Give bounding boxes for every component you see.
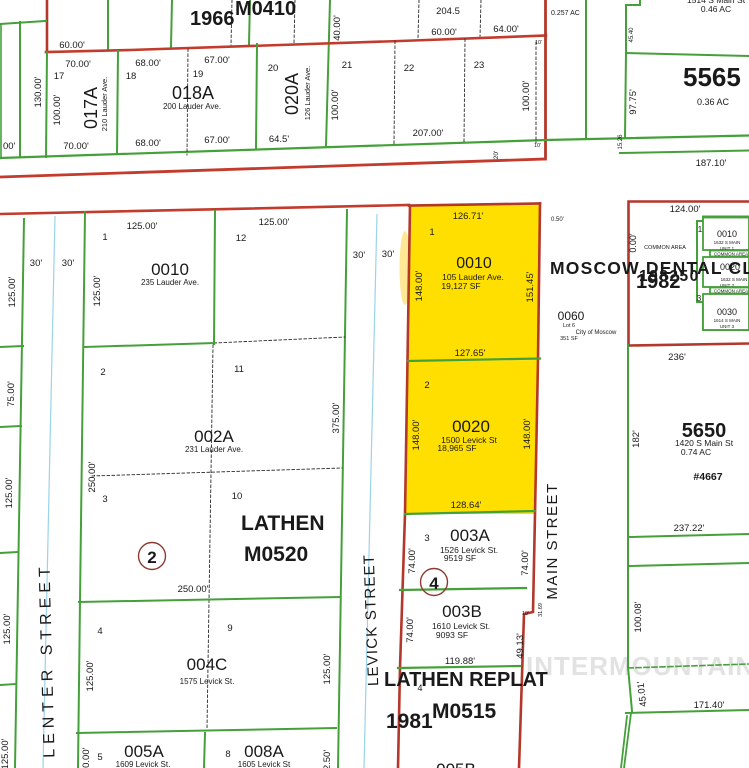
svg-text:1: 1 [698, 225, 703, 234]
svg-text:4: 4 [429, 574, 439, 593]
svg-text:COMMON AREA: COMMON AREA [644, 245, 686, 251]
svg-text:004C: 004C [187, 655, 228, 674]
svg-text:231 Lauder Ave.: 231 Lauder Ave. [185, 445, 243, 454]
svg-text:1609 Levick St.: 1609 Levick St. [116, 760, 171, 768]
svg-text:15.26: 15.26 [618, 134, 624, 150]
svg-text:003A: 003A [450, 526, 490, 545]
svg-text:74.00': 74.00' [405, 617, 416, 643]
svg-text:250.00': 250.00' [87, 461, 98, 492]
svg-text:1605 Levick St: 1605 Levick St [238, 760, 291, 768]
svg-text:100.08': 100.08' [633, 601, 644, 632]
svg-text:0060: 0060 [558, 309, 585, 323]
svg-text:COMMON AREA: COMMON AREA [714, 252, 748, 257]
svg-text:005A: 005A [124, 742, 164, 761]
svg-text:2: 2 [147, 548, 156, 567]
svg-text:75.00': 75.00' [6, 381, 17, 407]
svg-text:148.00': 148.00' [522, 418, 533, 449]
svg-text:0030: 0030 [717, 307, 737, 317]
svg-text:30': 30' [382, 249, 395, 260]
svg-text:Lot 6: Lot 6 [563, 323, 575, 329]
svg-text:3: 3 [102, 494, 107, 505]
svg-text:23: 23 [474, 60, 485, 71]
svg-text:1575 Levick St.: 1575 Levick St. [180, 677, 235, 686]
svg-text:003B: 003B [442, 602, 482, 621]
svg-text:20: 20 [268, 63, 279, 74]
svg-text:1966: 1966 [190, 8, 235, 30]
svg-text:M0515: M0515 [432, 700, 497, 723]
svg-text:49.13': 49.13' [515, 633, 526, 659]
svg-text:204.5: 204.5 [436, 6, 460, 17]
svg-text:125.00': 125.00' [322, 653, 333, 684]
svg-text:M0520: M0520 [244, 543, 308, 566]
svg-text:200 Lauder Ave.: 200 Lauder Ave. [163, 102, 221, 111]
svg-text:005B: 005B [436, 760, 476, 768]
svg-text:4: 4 [97, 626, 102, 637]
svg-text:0010: 0010 [717, 229, 737, 239]
svg-text:19,127 SF: 19,127 SF [441, 281, 480, 291]
svg-text:148.00': 148.00' [411, 419, 422, 450]
svg-text:UNIT 3: UNIT 3 [720, 324, 735, 329]
svg-text:2: 2 [100, 367, 105, 378]
svg-text:68.00': 68.00' [135, 58, 161, 69]
svg-text:0010: 0010 [456, 255, 492, 272]
svg-text:City of Moscow: City of Moscow [576, 330, 617, 336]
svg-text:126.71': 126.71' [453, 211, 484, 222]
svg-text:151.45': 151.45' [525, 271, 536, 302]
svg-text:100.00': 100.00' [330, 89, 341, 120]
svg-text:1: 1 [102, 232, 107, 243]
svg-text:125.00': 125.00' [259, 217, 290, 228]
svg-text:0020: 0020 [452, 417, 490, 436]
svg-text:125.00': 125.00' [2, 613, 13, 644]
svg-text:125.00': 125.00' [92, 275, 103, 306]
svg-text:21: 21 [342, 60, 353, 71]
svg-text:30': 30' [353, 250, 366, 261]
svg-text:002A: 002A [194, 427, 234, 446]
svg-text:125.00': 125.00' [4, 477, 15, 508]
svg-text:187.10': 187.10' [696, 158, 727, 169]
svg-text:9093 SF: 9093 SF [436, 630, 468, 640]
svg-text:31.69: 31.69 [538, 603, 544, 617]
svg-text:182': 182' [631, 430, 642, 448]
svg-text:10': 10' [535, 40, 542, 46]
svg-text:250.00': 250.00' [178, 584, 209, 595]
svg-text:1981: 1981 [386, 710, 433, 733]
svg-text:40.00': 40.00' [332, 15, 343, 41]
svg-text:236': 236' [668, 352, 686, 363]
svg-text:0.257 AC: 0.257 AC [551, 10, 580, 17]
svg-text:INTERMOUNTAIN: INTERMOUNTAIN [526, 651, 749, 681]
svg-text:67.00': 67.00' [204, 55, 230, 66]
svg-text:008A: 008A [244, 742, 284, 761]
svg-text:COMMON AREA: COMMON AREA [714, 289, 748, 294]
svg-text:8: 8 [225, 749, 230, 760]
svg-text:126 Lauder Ave.: 126 Lauder Ave. [303, 66, 312, 121]
svg-text:17: 17 [54, 71, 65, 82]
svg-text:64.00': 64.00' [493, 24, 519, 35]
svg-text:64.5': 64.5' [269, 134, 289, 145]
svg-text:00': 00' [3, 141, 16, 152]
svg-text:LATHEN REPLAT: LATHEN REPLAT [384, 669, 548, 691]
svg-text:70.00': 70.00' [65, 59, 91, 70]
svg-text:30': 30' [30, 258, 43, 269]
svg-text:127.65': 127.65' [455, 348, 486, 359]
svg-text:250.00': 250.00' [81, 747, 92, 768]
svg-text:125.00': 125.00' [127, 221, 158, 232]
svg-text:20': 20' [493, 151, 500, 159]
svg-text:18,965 SF: 18,965 SF [437, 443, 476, 453]
svg-text:100.00': 100.00' [52, 94, 63, 125]
svg-text:125.00': 125.00' [0, 738, 11, 768]
svg-text:68.00': 68.00' [135, 138, 161, 149]
svg-text:375.00': 375.00' [331, 402, 342, 433]
svg-text:9: 9 [227, 623, 232, 634]
svg-text:0.00': 0.00' [628, 233, 638, 253]
svg-text:MAIN STREET: MAIN STREET [544, 482, 561, 599]
svg-text:020A: 020A [282, 73, 302, 115]
svg-text:237.22': 237.22' [674, 523, 705, 534]
svg-text:2: 2 [424, 380, 429, 391]
svg-text:0.74 AC: 0.74 AC [681, 447, 711, 457]
svg-text:10': 10' [522, 611, 529, 617]
svg-text:60.00': 60.00' [59, 40, 85, 51]
svg-text:171.40': 171.40' [694, 700, 725, 711]
svg-text:70.00': 70.00' [63, 141, 89, 152]
svg-text:22: 22 [404, 63, 415, 74]
svg-text:5565: 5565 [683, 62, 741, 92]
svg-text:148.00': 148.00' [414, 270, 425, 301]
svg-text:0.36 AC: 0.36 AC [697, 97, 730, 107]
svg-text:119.88': 119.88' [445, 656, 475, 667]
svg-text:124.00': 124.00' [670, 204, 701, 215]
svg-text:130.00': 130.00' [33, 76, 44, 107]
svg-text:#4667: #4667 [693, 471, 722, 483]
svg-text:M0410: M0410 [235, 0, 296, 20]
svg-text:4: 4 [417, 683, 422, 693]
svg-text:128.64': 128.64' [451, 500, 482, 511]
svg-text:1: 1 [429, 227, 434, 238]
svg-text:351 SF: 351 SF [560, 336, 578, 342]
svg-text:1632 S MAIN: 1632 S MAIN [714, 240, 741, 245]
svg-text:017A: 017A [81, 87, 101, 129]
svg-text:0.50': 0.50' [551, 217, 564, 223]
svg-text:30': 30' [62, 258, 75, 269]
svg-text:3: 3 [424, 533, 429, 544]
svg-text:74.00': 74.00' [520, 550, 531, 576]
svg-text:19: 19 [193, 69, 204, 80]
svg-text:1982: 1982 [636, 271, 681, 293]
svg-text:3: 3 [697, 294, 702, 303]
svg-text:45.40: 45.40 [629, 27, 635, 43]
svg-text:60.00': 60.00' [431, 27, 457, 38]
svg-text:LATHEN: LATHEN [241, 512, 325, 535]
svg-text:018A: 018A [172, 83, 214, 103]
svg-text:0010: 0010 [151, 260, 189, 279]
svg-text:74.00': 74.00' [407, 548, 418, 574]
svg-text:97.75': 97.75' [628, 89, 639, 115]
svg-text:18: 18 [126, 71, 137, 82]
svg-text:235 Lauder Ave.: 235 Lauder Ave. [141, 278, 199, 287]
svg-text:67.00': 67.00' [204, 135, 230, 146]
svg-text:12: 12 [236, 233, 247, 244]
svg-text:207.00': 207.00' [413, 128, 444, 139]
svg-text:5: 5 [97, 752, 102, 763]
svg-text:210 Lauder Ave.: 210 Lauder Ave. [100, 77, 109, 132]
svg-text:125.00': 125.00' [7, 276, 18, 307]
svg-text:10: 10 [232, 491, 243, 502]
svg-text:10': 10' [534, 143, 541, 149]
svg-text:2.50': 2.50' [322, 750, 333, 768]
svg-text:9519 SF: 9519 SF [444, 553, 476, 563]
svg-text:11: 11 [234, 364, 244, 375]
svg-text:0.46 AC: 0.46 AC [701, 4, 731, 14]
svg-text:125.00': 125.00' [85, 660, 96, 691]
svg-text:100.00': 100.00' [521, 80, 532, 111]
svg-text:1614 S MAIN: 1614 S MAIN [714, 318, 741, 323]
